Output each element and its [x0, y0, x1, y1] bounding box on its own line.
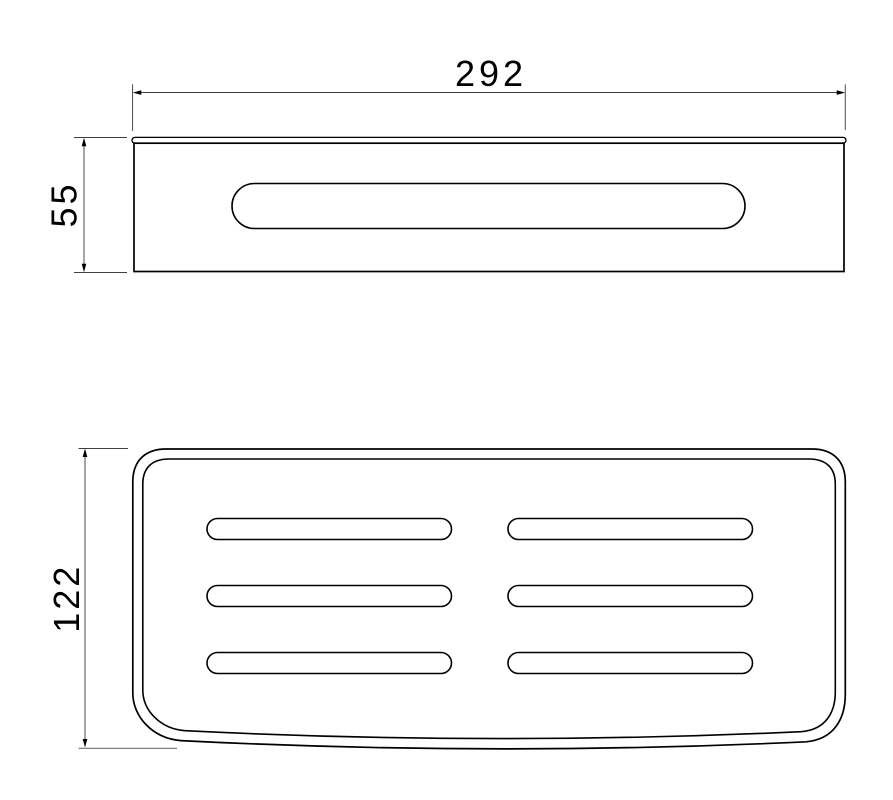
- svg-text:122: 122: [46, 564, 87, 633]
- svg-text:55: 55: [44, 181, 85, 227]
- svg-text:292: 292: [455, 53, 527, 94]
